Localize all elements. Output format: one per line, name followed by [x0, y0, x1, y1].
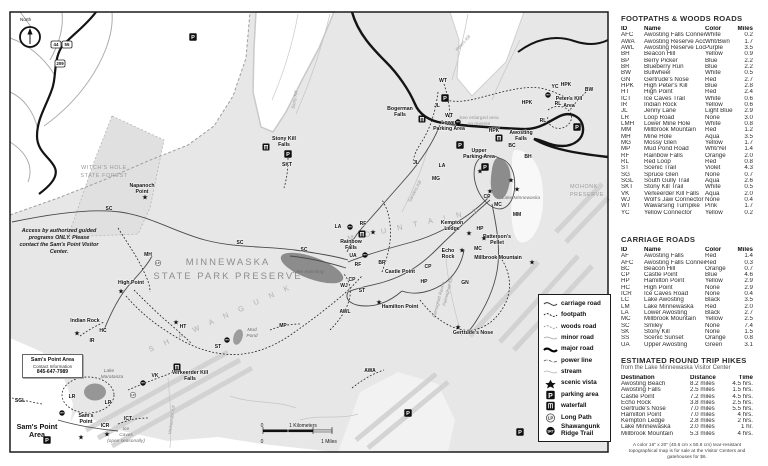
- map-label: Lake: [104, 368, 115, 374]
- map-label: MINNEWASKA: [186, 257, 271, 268]
- scale-label: 0: [261, 439, 264, 445]
- trail-id-label: LR: [105, 400, 112, 406]
- lp-marker-label: LP: [156, 262, 159, 265]
- svg-text:P: P: [548, 393, 553, 400]
- trail-id-label: HP: [477, 226, 485, 232]
- parking-icon-letter: P: [458, 143, 462, 149]
- scenic-vista-star-icon: ★: [74, 329, 80, 337]
- map-label: (open seasonally): [107, 438, 145, 444]
- map-label: Ledge: [444, 226, 459, 232]
- scenic-vista-star-icon: ★: [455, 323, 461, 331]
- scenic-vista-icon: [543, 379, 558, 389]
- trail-id-label: MH: [144, 252, 152, 258]
- trail-id-label: HPK: [561, 82, 572, 88]
- legend-item: major road: [543, 345, 608, 355]
- scenic-vista-star-icon: ★: [370, 228, 376, 236]
- table-cell: Yellow Connector: [644, 210, 705, 216]
- legend-item: LPLong Path: [543, 413, 608, 423]
- lp-marker-label: LP: [131, 394, 134, 397]
- table-cell: Millbrook Mountain: [621, 431, 690, 437]
- map-label: Parking Area: [433, 126, 465, 132]
- parking-icon-letter: P: [575, 125, 579, 131]
- trail-id-label: ICR: [101, 423, 110, 429]
- scenic-vista-star-icon: ★: [118, 287, 124, 295]
- table-cell: YC: [621, 210, 644, 216]
- trail-id-label: SC: [301, 247, 308, 253]
- parking-icon-letter: P: [483, 165, 487, 171]
- scenic-vista-star-icon: ★: [376, 298, 382, 306]
- parking-icon-letter: P: [286, 152, 290, 158]
- map-label: STATE FOREST: [80, 173, 127, 179]
- srt-icon: SRT: [543, 426, 558, 436]
- trail-id-label: LA: [335, 224, 342, 230]
- trail-id-label: JL: [413, 160, 419, 166]
- waterfall-icon-glyph: [420, 117, 424, 121]
- scale-label: 1 Miles: [321, 439, 337, 445]
- table-cell: 5.3 miles: [690, 431, 726, 437]
- map-label: Castle Point: [385, 269, 415, 275]
- trail-id-label: JL: [434, 103, 440, 109]
- trail-id-label: AWA: [364, 368, 376, 374]
- trail-id-label: YC: [552, 84, 559, 90]
- scenic-vista-star-icon: ★: [514, 185, 520, 193]
- map-label: Point: [80, 419, 93, 425]
- trail-id-label: WT: [439, 78, 447, 84]
- table-title: FOOTPATHS & WOODS ROADS: [621, 14, 753, 23]
- map-label: Millbrook Mountain: [474, 255, 522, 261]
- trail-id-label: HT: [180, 324, 187, 330]
- trail-id-label: MM: [513, 212, 521, 218]
- footpath-icon: [543, 310, 558, 320]
- trail-id-label: CP: [349, 277, 357, 283]
- trail-id-label: BC: [508, 143, 516, 149]
- access-note: Access by authorized guided programs ONL…: [19, 228, 99, 256]
- trail-id-label: VK: [152, 373, 159, 379]
- table-row: Millbrook Mountain5.3 miles4 hrs.: [621, 431, 753, 437]
- legend-item-label: Shawangunk Ridge Trail: [561, 424, 608, 437]
- map-label: Falls: [345, 245, 357, 251]
- legend-item-label: scenic vista: [561, 380, 597, 386]
- table-row: UAUpper AwostingGreen3.1: [621, 342, 753, 348]
- trail-id-label: MG: [432, 176, 440, 182]
- trail-id-label: SKT: [282, 162, 292, 168]
- map-label: WITCH'S HOLE: [81, 165, 127, 171]
- scenic-vista-star-icon: ★: [104, 430, 110, 438]
- legend-item: footpath: [543, 310, 608, 320]
- trail-id-label: MC: [494, 202, 502, 208]
- trail-id-label: WT: [445, 113, 453, 119]
- map-label: Hamilton Point: [382, 304, 419, 310]
- route-shield-number: 55: [65, 42, 70, 47]
- map-label: North: [20, 17, 32, 22]
- map-sale-footnote: A color 16" x 20" (40.6 cm x 50.8 cm) te…: [621, 443, 753, 462]
- round-trip-hikes-table: ESTIMATED ROUND TRIP HIKESfrom the Lake …: [621, 356, 753, 437]
- table-cell: 4 hrs.: [726, 431, 753, 437]
- trail-id-label: SGL: [15, 398, 25, 404]
- waterfall-icon-glyph: [497, 136, 501, 140]
- sams-box-phone: 845-647-7989: [24, 369, 81, 375]
- trail-id-label: HP: [421, 279, 429, 285]
- parking-icon-letter: P: [406, 411, 410, 417]
- power-line-icon: [543, 356, 558, 366]
- trail-id-label: ST: [215, 344, 221, 350]
- trail-id-label: ST: [359, 288, 365, 294]
- parking-area-icon: P: [543, 390, 558, 400]
- legend-item: stream: [543, 367, 608, 377]
- legend-item: Pparking area: [543, 390, 608, 400]
- table-cell: 0.2: [736, 210, 753, 216]
- scenic-vista-star-icon: ★: [142, 193, 148, 201]
- scenic-vista-star-icon: ★: [487, 187, 493, 195]
- table-row: YCYellow ConnectorYellow0.2: [621, 210, 753, 216]
- trail-id-label: LA: [439, 163, 446, 169]
- map-label: Ice: [123, 426, 130, 432]
- scenic-vista-star-icon: ★: [173, 318, 179, 326]
- waterfall-icon-glyph: [360, 232, 364, 236]
- trail-id-label: RF: [355, 262, 362, 268]
- table-cell: Upper Awosting: [644, 342, 705, 348]
- legend-item: waterfall: [543, 401, 608, 411]
- trail-id-label: HPK: [522, 100, 533, 106]
- map-label: Pond: [246, 333, 258, 339]
- scenic-vista-star-icon: ★: [529, 258, 535, 266]
- parking-icon-letter: P: [518, 430, 522, 436]
- trail-id-label: RL: [540, 118, 547, 124]
- trail-id-label: RF: [360, 221, 367, 227]
- legend-item-label: power line: [561, 358, 592, 364]
- trail-id-label: CP: [425, 264, 433, 270]
- map-label: STATE PARK PRESERVE: [153, 271, 302, 282]
- trail-id-label: WJ: [340, 283, 348, 289]
- map-label: High Point: [118, 280, 144, 286]
- trail-id-label: BW: [585, 87, 594, 93]
- info-panel: FOOTPATHS & WOODS ROADSIDNameColorMilesA…: [621, 0, 753, 461]
- long-path-icon: LP: [543, 413, 558, 423]
- legend-item-label: minor road: [561, 335, 594, 341]
- woods-road-icon: [543, 322, 558, 332]
- trail-id-label: UA: [349, 253, 357, 259]
- legend-item-label: Long Path: [561, 415, 592, 421]
- scenic-vista-star-icon: ★: [459, 246, 465, 254]
- parking-icon-letter: P: [191, 35, 195, 41]
- table-cell: Green: [705, 342, 736, 348]
- legend-item-label: major road: [561, 346, 594, 352]
- trail-id-label: HPK: [489, 128, 500, 134]
- map-label: Pellet: [490, 240, 504, 246]
- trail-id-label: GN: [461, 280, 469, 286]
- map-label: Area: [563, 103, 575, 109]
- map-label: Rock: [442, 254, 455, 260]
- trail-id-label: AWL: [339, 309, 350, 315]
- legend-item: SRTShawangunk Ridge Trail: [543, 424, 608, 437]
- waterfall-icon-glyph: [264, 145, 268, 149]
- table-cell: Yellow: [705, 210, 736, 216]
- map-label: Lake Awosting: [293, 269, 324, 275]
- trail-id-label: ICT: [124, 416, 132, 422]
- table-cell: UA: [621, 342, 644, 348]
- carriage-road-icon: [543, 299, 558, 309]
- lake-maratanza: [84, 384, 106, 401]
- scale-label: 1 Kilometers: [289, 423, 317, 429]
- scenic-vista-star-icon: ★: [508, 176, 514, 184]
- trail-id-label: IR: [90, 338, 95, 344]
- route-shield-number: 44: [54, 42, 59, 47]
- trail-id-label: SC: [106, 206, 113, 212]
- scenic-vista-star-icon: ★: [481, 234, 487, 242]
- map-label: PRESERVE: [570, 192, 604, 198]
- route-shield-number: 209: [56, 61, 64, 66]
- trail-id-label: HC: [99, 328, 107, 334]
- svg-text:LP: LP: [548, 415, 554, 420]
- map-label: Lake Minnewaska: [502, 195, 541, 201]
- trail-id-label: BR: [378, 260, 386, 266]
- major-road-icon: [543, 345, 558, 355]
- carriage-roads-table: CARRIAGE ROADSIDNameColorMilesAFAwosting…: [621, 235, 753, 348]
- minor-road-icon: [543, 333, 558, 343]
- table-cell: 3.1: [736, 342, 753, 348]
- legend-item-label: stream: [561, 369, 582, 375]
- parking-icon-letter: P: [45, 438, 49, 444]
- map-label: Parking Area: [463, 154, 495, 160]
- table-title: ESTIMATED ROUND TRIP HIKES: [621, 356, 753, 365]
- map-label: Mud: [247, 327, 257, 333]
- legend-item-label: footpath: [561, 312, 586, 318]
- trail-id-label: RL: [555, 101, 562, 107]
- trail-id-label: BH: [524, 154, 532, 160]
- stream-icon: [543, 367, 558, 377]
- map-label: Falls: [515, 136, 527, 142]
- legend-item: power line: [543, 356, 608, 366]
- trail-id-label: MP: [279, 323, 287, 329]
- trail-map-page: NorthMINNEWASKASTATE PARK PRESERVES H A …: [0, 0, 768, 466]
- sams-point-contact-box: Sam's Point Area Contact Information 845…: [22, 354, 83, 378]
- trail-id-label: MC: [474, 246, 482, 252]
- waterfall-icon-glyph: [175, 365, 179, 369]
- table-subtitle: from the Lake Minnewaska Visitor Center: [621, 365, 753, 372]
- map-label: Maratanza: [101, 374, 124, 380]
- map-legend: carriage roadfootpathwoods roadminor roa…: [538, 294, 611, 442]
- map-label: See enlarged area: [459, 115, 499, 121]
- legend-item-label: woods road: [561, 324, 596, 330]
- map-label: Falls: [184, 376, 196, 382]
- sams-box-subtitle: Contact Information: [24, 364, 81, 369]
- legend-item: carriage road: [543, 299, 608, 309]
- scenic-vista-star-icon: ★: [466, 229, 472, 237]
- compass-icon: [20, 27, 40, 47]
- legend-item-label: carriage road: [561, 301, 601, 307]
- legend-item-label: parking area: [561, 392, 598, 398]
- trail-id-label: LR: [69, 394, 76, 400]
- map-label: Falls: [278, 142, 290, 148]
- map-label: Indian Rock: [70, 318, 100, 324]
- legend-item-label: waterfall: [561, 403, 587, 409]
- scenic-vista-star-icon: ★: [78, 433, 84, 441]
- legend-item: minor road: [543, 333, 608, 343]
- table-title: CARRIAGE ROADS: [621, 235, 753, 244]
- map-label: on reverse: [468, 121, 491, 127]
- svg-text:SRT: SRT: [547, 429, 553, 433]
- legend-item: scenic vista: [543, 379, 608, 389]
- scale-label: 0: [261, 423, 264, 429]
- parking-icon-letter: P: [443, 96, 447, 102]
- waterfall-icon: [543, 401, 558, 411]
- map-label: Falls: [394, 112, 406, 118]
- sams-box-title: Sam's Point Area: [24, 357, 81, 363]
- legend-item: woods road: [543, 322, 608, 332]
- trail-id-label: SC: [237, 240, 244, 246]
- map-label: MOHONK: [570, 184, 598, 190]
- map-label: Caves: [119, 432, 133, 438]
- footpaths-table: FOOTPATHS & WOODS ROADSIDNameColorMilesA…: [621, 14, 753, 216]
